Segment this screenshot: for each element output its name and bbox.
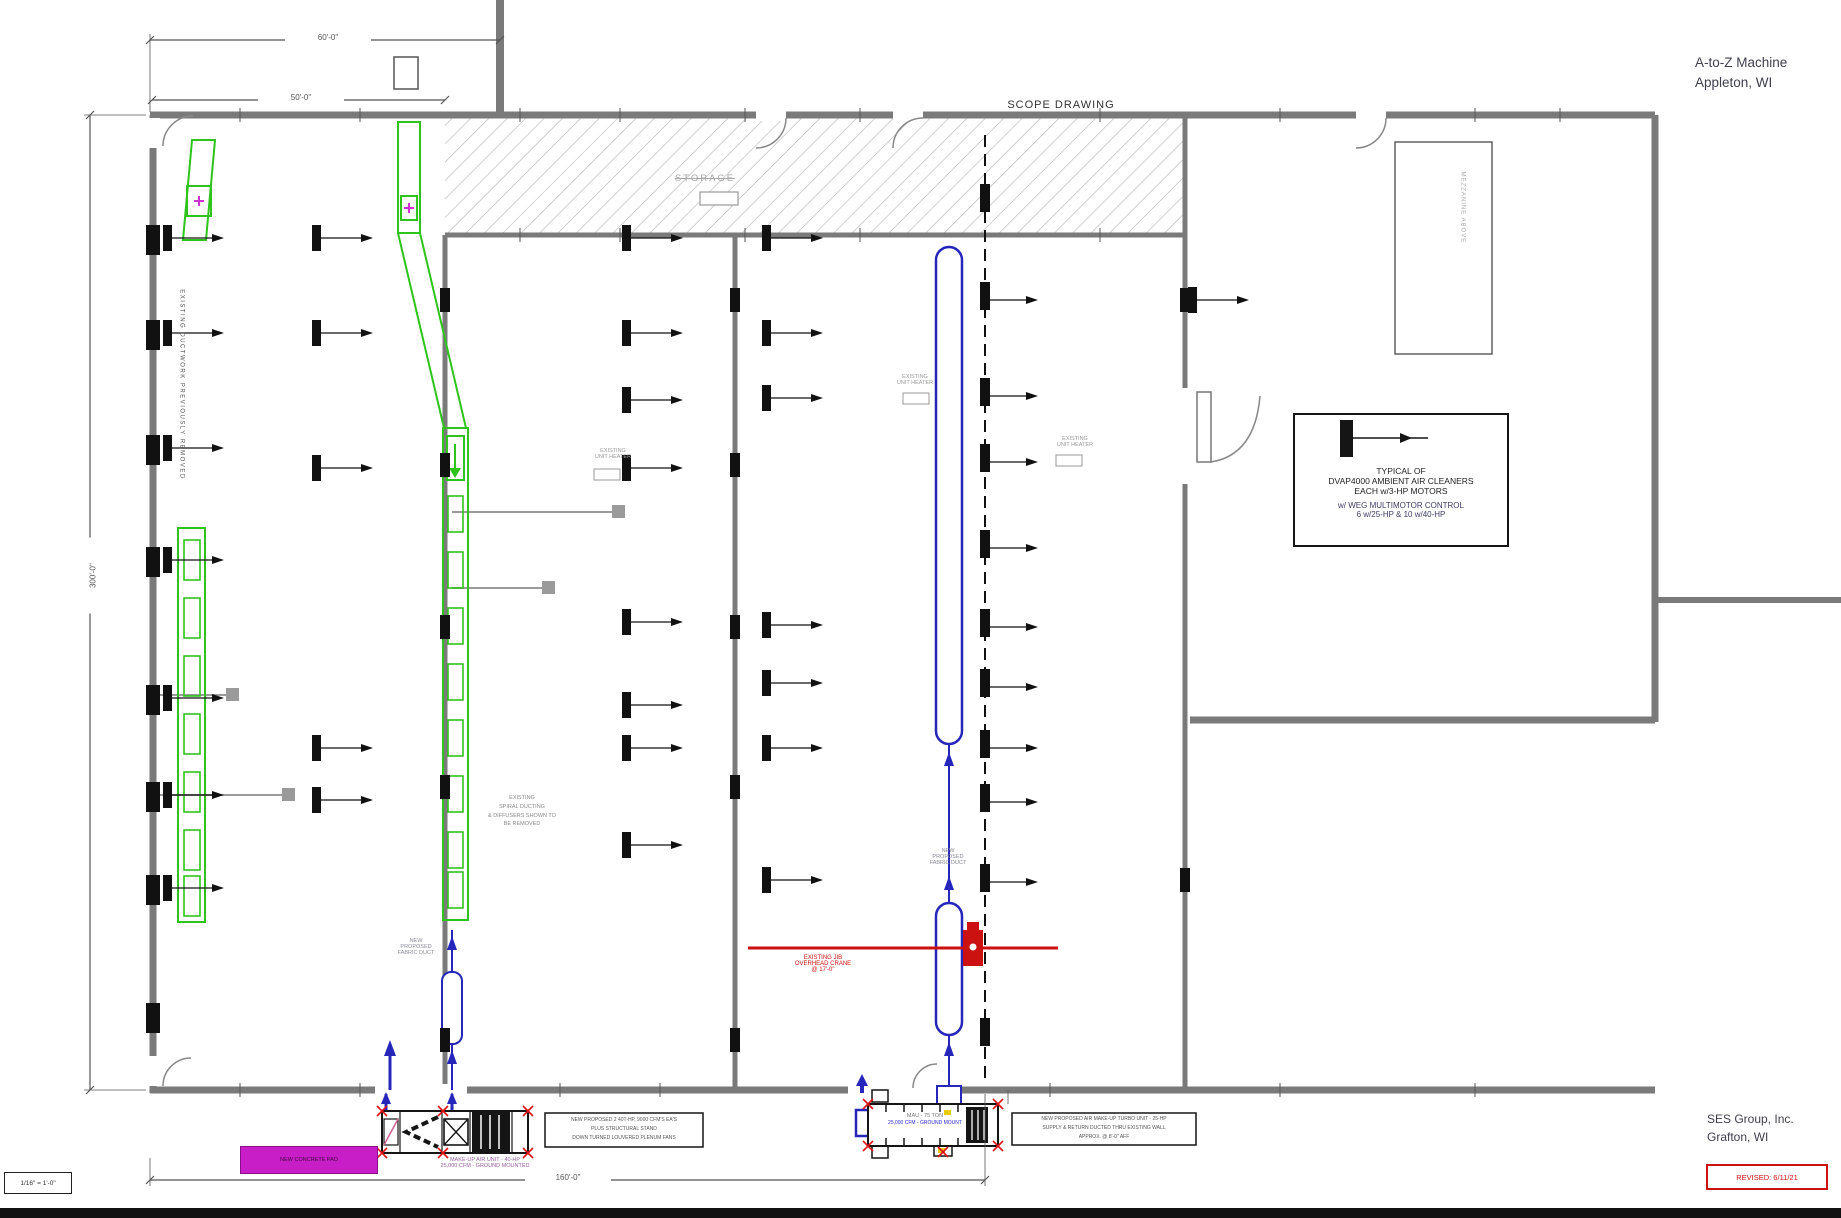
air-cleaner-symbol [312, 455, 321, 481]
client-name: A-to-Z Machine [1695, 55, 1787, 71]
dim-left-overall: 300'-0" [88, 538, 97, 614]
floor-plan-linework [0, 0, 1841, 1218]
existing-green-ductwork [178, 122, 468, 922]
pad-label: NEW CONCRETE PAD [280, 1157, 338, 1163]
client-city: Appleton, WI [1695, 75, 1772, 91]
air-cleaner-symbol [762, 385, 771, 411]
unit-heater-label-1: EXISTING UNIT HEATER [578, 448, 648, 460]
storage-hatch [445, 118, 1185, 235]
dim-bottom-overall: 160'-0" [525, 1173, 611, 1182]
air-cleaner-symbol [622, 387, 631, 413]
note-box-1-text: NEW PROPOSED 2 40T-HP, 9000 CFM'S EA'S P… [547, 1116, 701, 1143]
unit1-air-handler [382, 1111, 528, 1153]
air-cleaner-symbol [622, 320, 631, 346]
air-cleaner-symbol [163, 685, 172, 711]
column-mark [146, 435, 160, 465]
air-cleaner-symbol [163, 225, 172, 251]
fabric-duct-label-1: NEW PROPOSED FABRIC DUCT [386, 938, 446, 956]
sheet-bottom-bar [0, 1208, 1841, 1218]
revision-stamp: REVISED: 6/11/21 [1706, 1164, 1828, 1190]
air-cleaner-symbol [312, 225, 321, 251]
air-cleaner-symbol [762, 867, 771, 893]
air-cleaner-symbol [622, 735, 631, 761]
existing-gray-lines [157, 512, 618, 795]
mezzanine-note: MEZZANINE ABOVE [1459, 142, 1466, 272]
air-cleaner-symbol [762, 735, 771, 761]
column-mark [146, 685, 160, 715]
air-cleaner-symbol [762, 612, 771, 638]
air-cleaner-symbol [622, 225, 631, 251]
scale-text: 1/16" = 1'-0" [20, 1180, 55, 1187]
damper-marks [194, 196, 414, 213]
air-cleaner-symbol [163, 435, 172, 461]
air-cleaner-symbol [622, 692, 631, 718]
air-cleaner-symbol [762, 670, 771, 696]
air-cleaner-symbol [1188, 287, 1197, 313]
storage-label: STORAGE [660, 174, 750, 185]
column-mark [146, 1003, 160, 1033]
scale-box: 1/16" = 1'-0" [4, 1172, 72, 1194]
crane-note: EXISTING JIB OVERHEAD CRANE @ 17'-0" [778, 955, 868, 973]
column-mark [146, 875, 160, 905]
scope-drawing-sheet: A-to-Z Machine Appleton, WI SCOPE DRAWIN… [0, 0, 1841, 1218]
air-cleaner-symbol [163, 782, 172, 808]
fabric-duct-label-2: NEW PROPOSED FABRIC DUCT [918, 848, 978, 866]
dim-top-inner: 50'-0" [258, 93, 344, 102]
green-diffuser-slots [184, 496, 463, 916]
note-box-2-text: NEW PROPOSED AIR MAKE-UP TURBO UNIT - 25… [1014, 1115, 1194, 1142]
air-cleaner-symbol [762, 225, 771, 251]
revision-text: REVISED: 6/11/21 [1736, 1173, 1798, 1182]
firm-city: Grafton, WI [1707, 1131, 1768, 1145]
column-mark [146, 782, 160, 812]
air-cleaner-symbol [163, 547, 172, 573]
air-cleaner-symbol [312, 735, 321, 761]
blue-flow-arrowheads [381, 752, 954, 1104]
unit1-caption: MAKE-UP AIR UNIT - 40-HP 25,000 CFM - GR… [420, 1157, 550, 1169]
unit-heater-label-3: EXISTING UNIT HEATER [1040, 436, 1110, 448]
air-cleaner-symbol [312, 320, 321, 346]
magenta-highlight-pad: NEW CONCRETE PAD [240, 1146, 378, 1174]
column-mark [146, 547, 160, 577]
firm-name: SES Group, Inc. [1707, 1113, 1794, 1127]
unit2-text-line2: 25,000 CFM - GROUND MOUNT [880, 1121, 970, 1127]
typical-note-text: TYPICAL OF DVAP4000 AMBIENT AIR CLEANERS… [1298, 466, 1504, 519]
unit-heater-label-2: EXISTING UNIT HEATER [880, 374, 950, 386]
air-cleaner-symbol [163, 320, 172, 346]
new-blue-fabric-ducts [386, 247, 962, 1136]
spiral-duct-note: EXISTING SPIRAL DUCTING & DIFFUSERS SHOW… [472, 794, 572, 829]
air-cleaner-symbol [762, 320, 771, 346]
column-mark [146, 225, 160, 255]
drawing-title: SCOPE DRAWING [961, 99, 1161, 112]
air-cleaner-symbol [622, 609, 631, 635]
air-cleaner-symbol [312, 787, 321, 813]
left-wall-note: EXISTING DUCTWORK PREVIOUSLY REMOVED [178, 279, 185, 489]
air-cleaner-symbol [163, 875, 172, 901]
column-mark [146, 320, 160, 350]
dim-top-overall: 60'-0" [285, 33, 371, 42]
storage-symbol [700, 192, 738, 205]
unit2-text-line1: MAU - 75 TON [886, 1113, 964, 1119]
air-cleaner-symbol [622, 832, 631, 858]
